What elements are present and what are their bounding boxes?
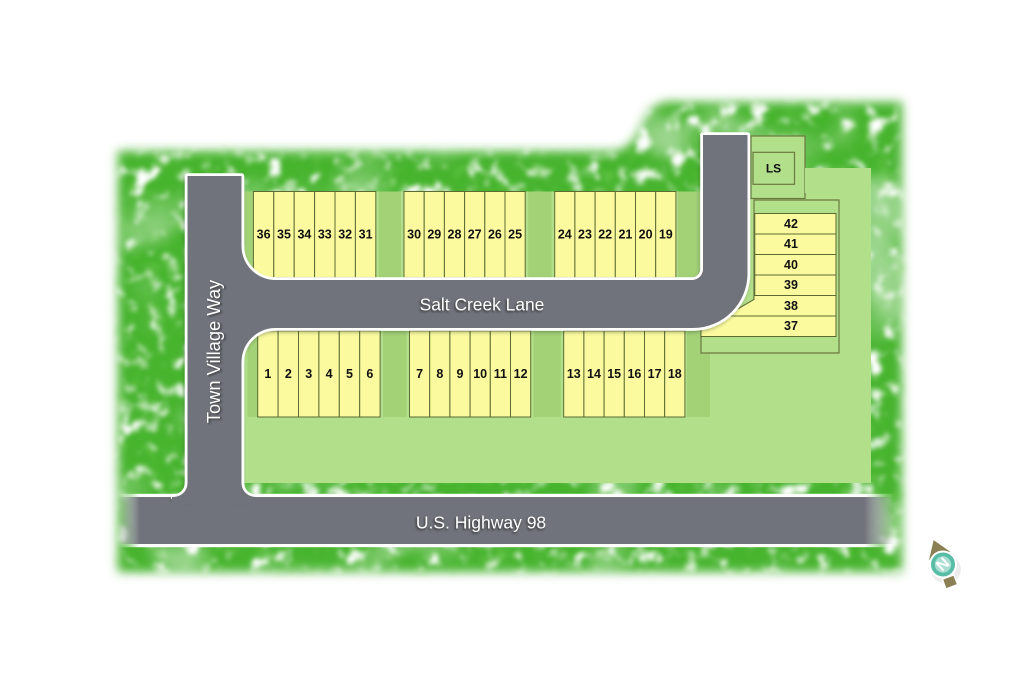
svg-text:30: 30 (407, 228, 421, 242)
svg-text:39: 39 (784, 278, 798, 292)
svg-text:4: 4 (326, 367, 333, 381)
svg-text:12: 12 (514, 367, 528, 381)
svg-text:38: 38 (784, 299, 798, 313)
svg-text:31: 31 (359, 228, 373, 242)
svg-text:11: 11 (494, 367, 507, 381)
svg-text:35: 35 (277, 228, 291, 242)
svg-text:29: 29 (427, 228, 441, 242)
svg-text:28: 28 (448, 228, 462, 242)
svg-text:8: 8 (436, 367, 443, 381)
svg-text:LS: LS (766, 162, 781, 176)
svg-text:15: 15 (607, 367, 621, 381)
svg-text:16: 16 (627, 367, 641, 381)
svg-text:25: 25 (508, 228, 522, 242)
svg-text:20: 20 (639, 228, 653, 242)
svg-text:Town Village Way: Town Village Way (203, 279, 224, 423)
svg-text:17: 17 (648, 367, 662, 381)
svg-text:36: 36 (257, 228, 271, 242)
svg-text:40: 40 (784, 258, 798, 272)
svg-text:33: 33 (318, 228, 332, 242)
svg-text:Salt Creek Lane: Salt Creek Lane (420, 295, 545, 315)
svg-text:14: 14 (587, 367, 601, 381)
svg-text:3: 3 (305, 367, 312, 381)
svg-text:U.S. Highway 98: U.S. Highway 98 (416, 513, 546, 533)
svg-text:22: 22 (598, 228, 612, 242)
svg-text:23: 23 (578, 228, 592, 242)
svg-text:9: 9 (457, 367, 464, 381)
svg-text:42: 42 (784, 217, 798, 231)
svg-text:37: 37 (784, 319, 798, 333)
svg-text:32: 32 (338, 228, 352, 242)
svg-text:10: 10 (473, 367, 487, 381)
svg-text:41: 41 (784, 237, 798, 251)
svg-text:26: 26 (488, 228, 502, 242)
svg-text:5: 5 (346, 367, 353, 381)
svg-text:13: 13 (567, 367, 581, 381)
svg-text:19: 19 (659, 228, 673, 242)
svg-text:34: 34 (297, 228, 311, 242)
svg-text:7: 7 (416, 367, 423, 381)
svg-text:1: 1 (264, 367, 271, 381)
svg-text:24: 24 (558, 228, 572, 242)
svg-text:18: 18 (668, 367, 682, 381)
svg-text:27: 27 (468, 228, 482, 242)
svg-text:21: 21 (618, 228, 632, 242)
svg-text:2: 2 (285, 367, 292, 381)
svg-text:6: 6 (366, 367, 373, 381)
